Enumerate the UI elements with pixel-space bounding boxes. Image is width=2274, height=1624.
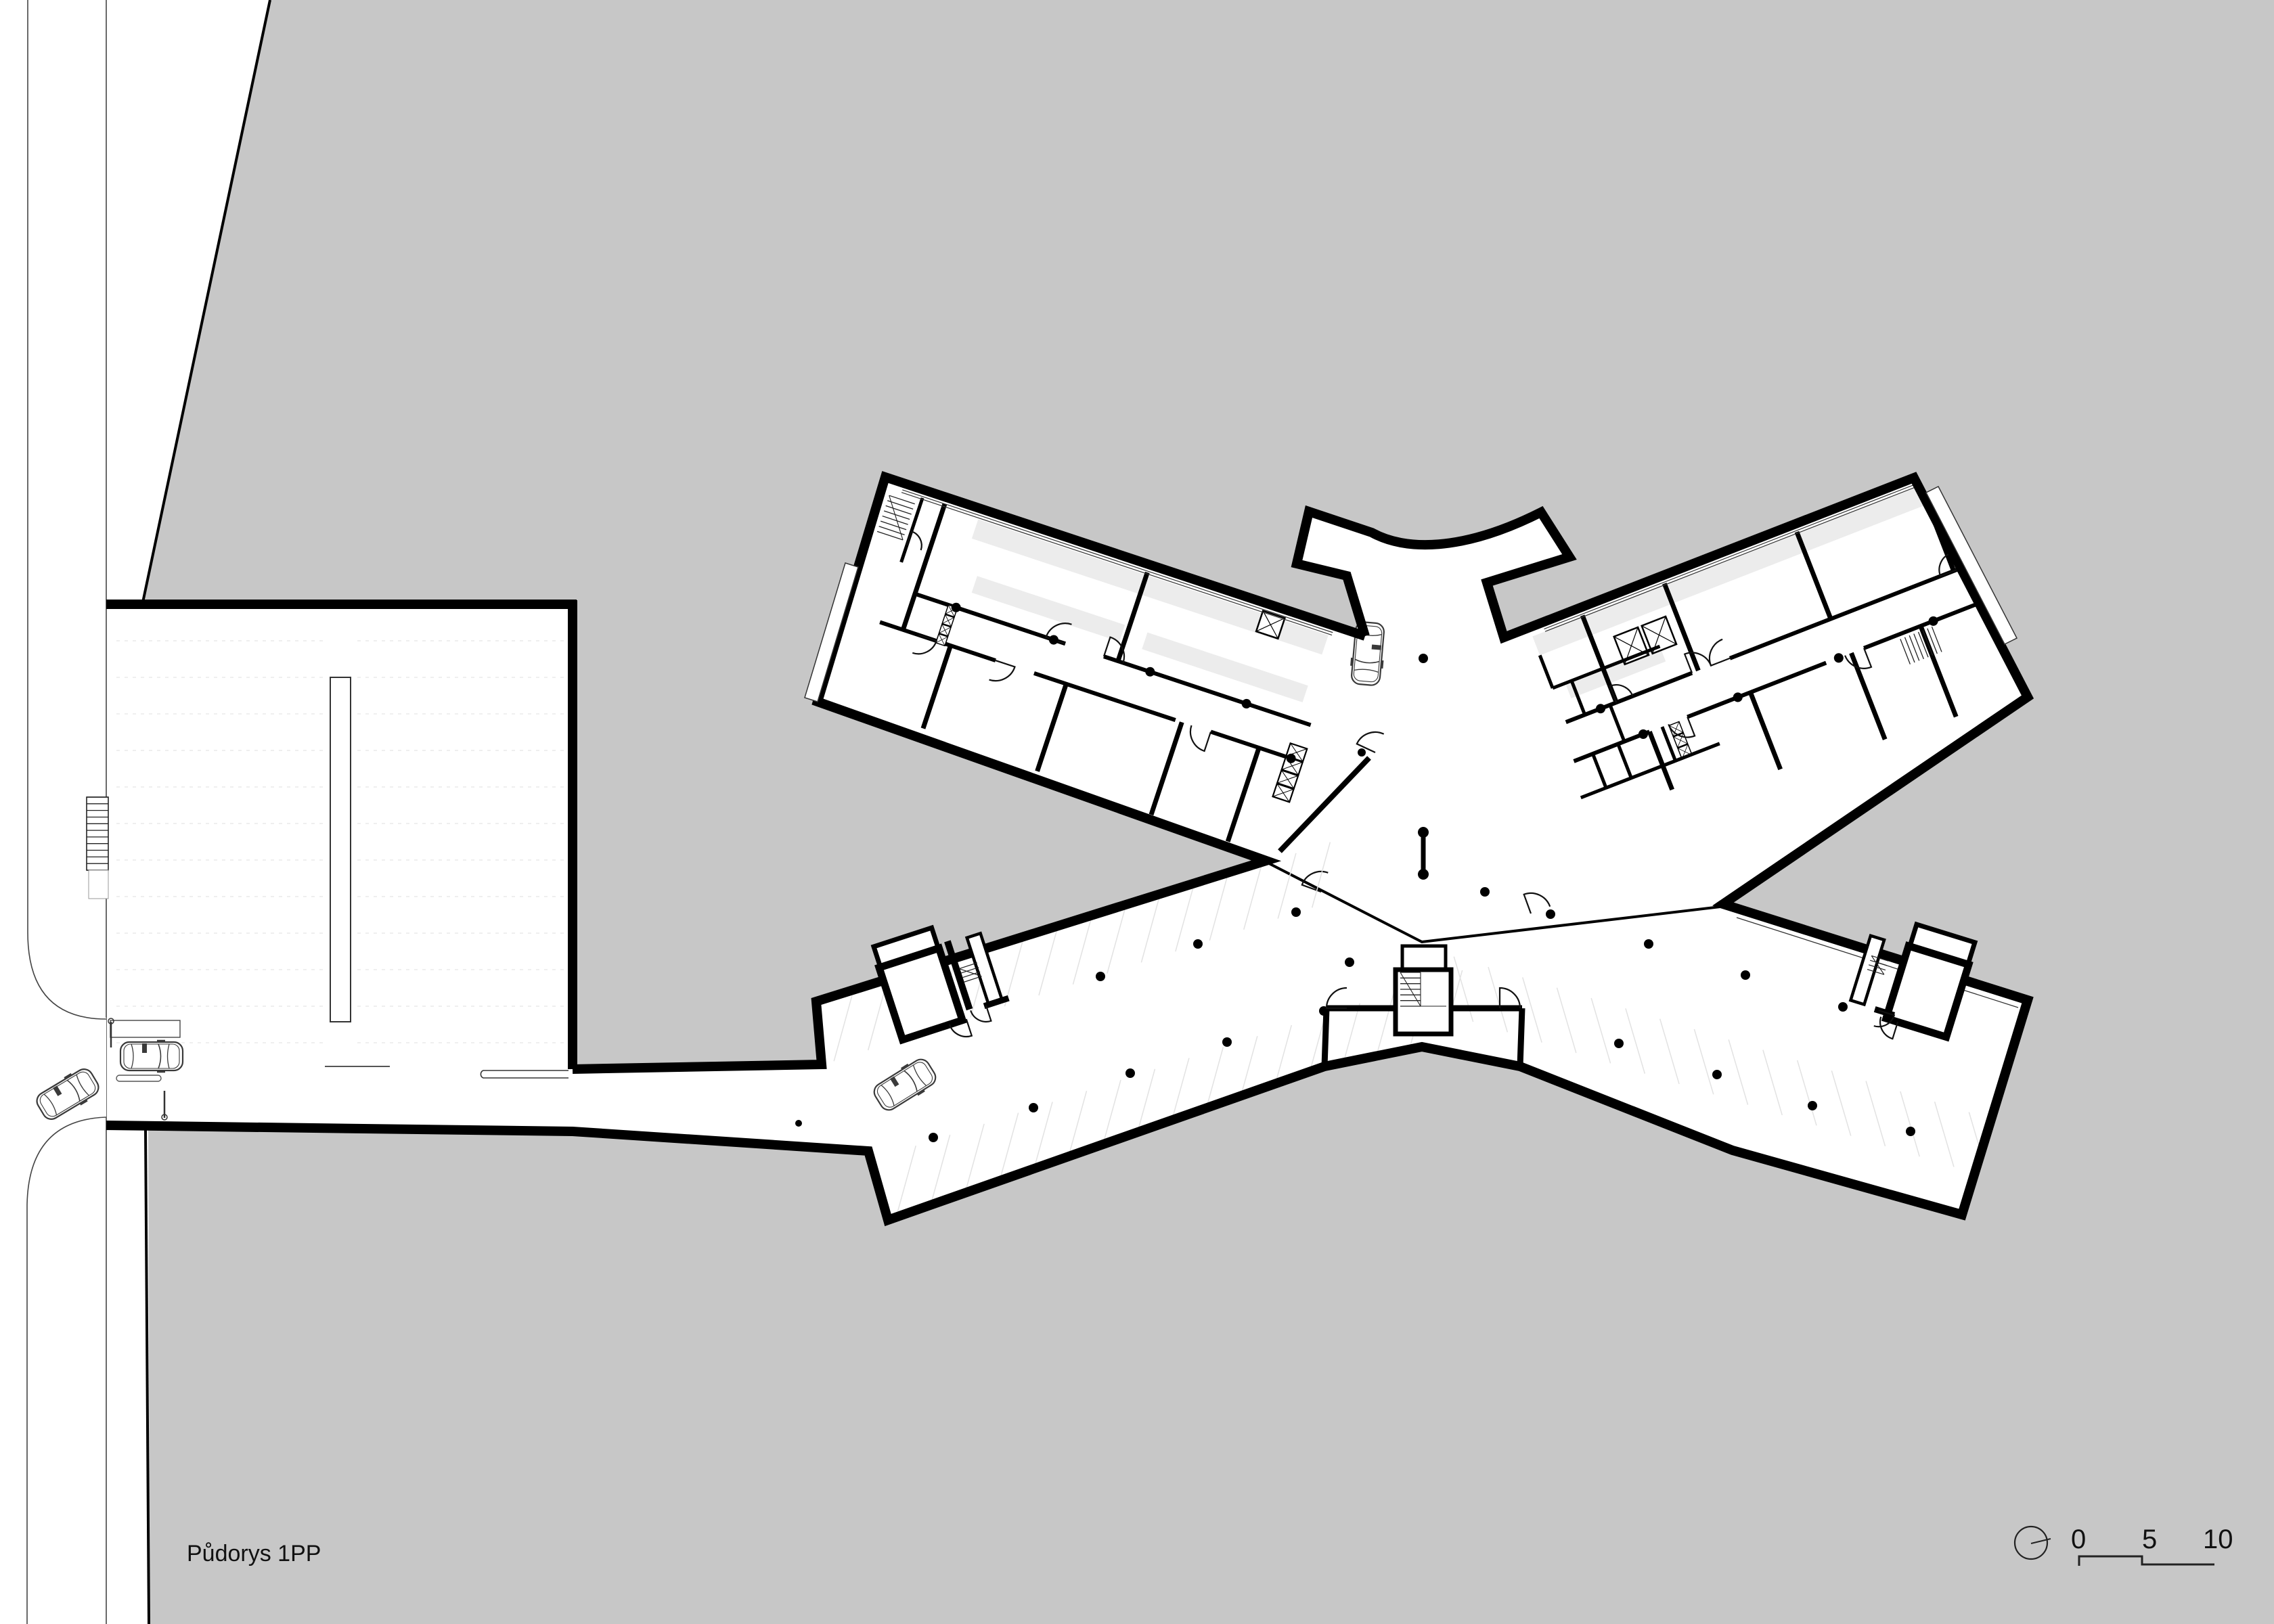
svg-text:5: 5 bbox=[2142, 1525, 2157, 1554]
svg-text:10: 10 bbox=[2203, 1525, 2233, 1554]
svg-text:Půdorys 1PP: Půdorys 1PP bbox=[187, 1541, 321, 1566]
svg-text:0: 0 bbox=[2071, 1525, 2086, 1554]
